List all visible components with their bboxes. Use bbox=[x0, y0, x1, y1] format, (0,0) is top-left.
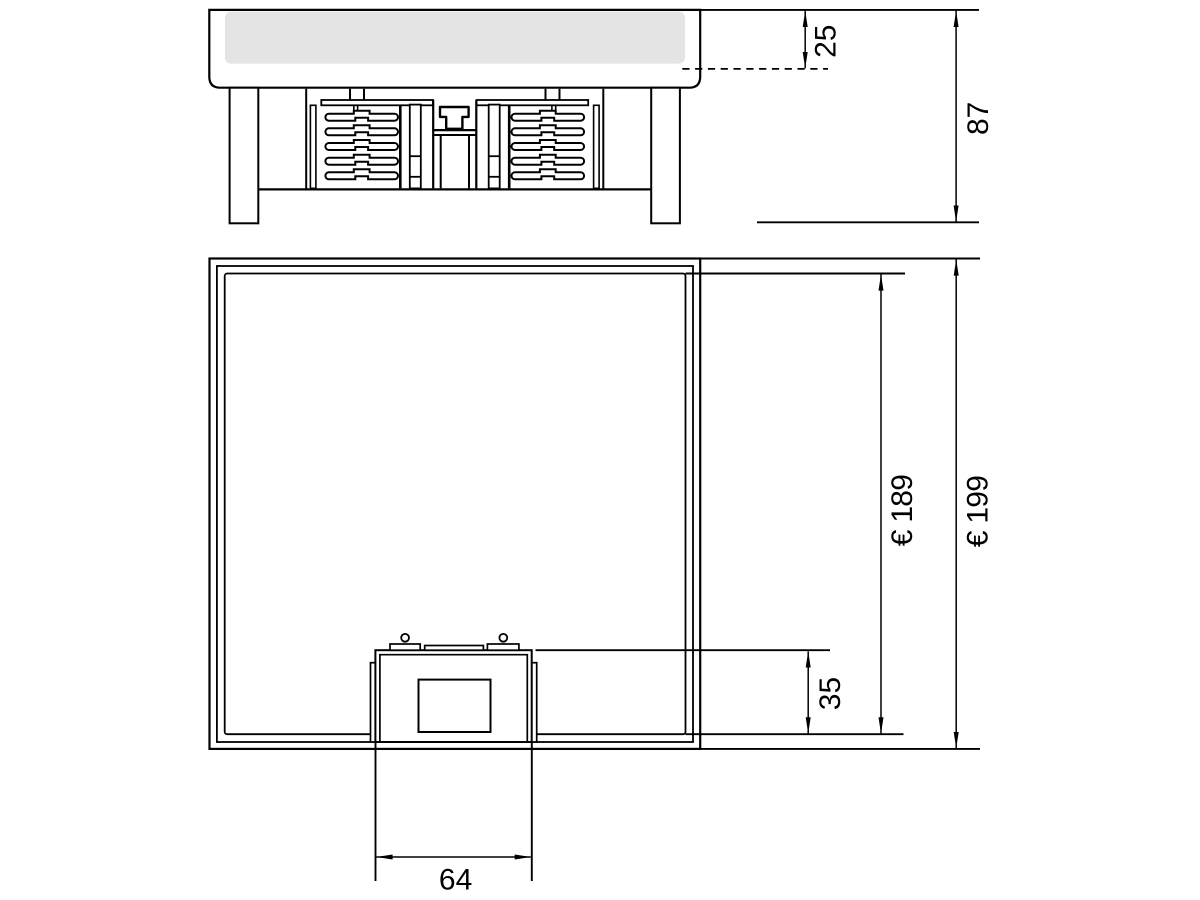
svg-text:64: 64 bbox=[439, 864, 472, 897]
svg-text:€ 199: € 199 bbox=[962, 476, 995, 548]
svg-text:35: 35 bbox=[814, 677, 847, 710]
svg-text:87: 87 bbox=[962, 102, 995, 135]
svg-text:€ 189: € 189 bbox=[886, 475, 919, 547]
svg-text:25: 25 bbox=[809, 25, 842, 58]
